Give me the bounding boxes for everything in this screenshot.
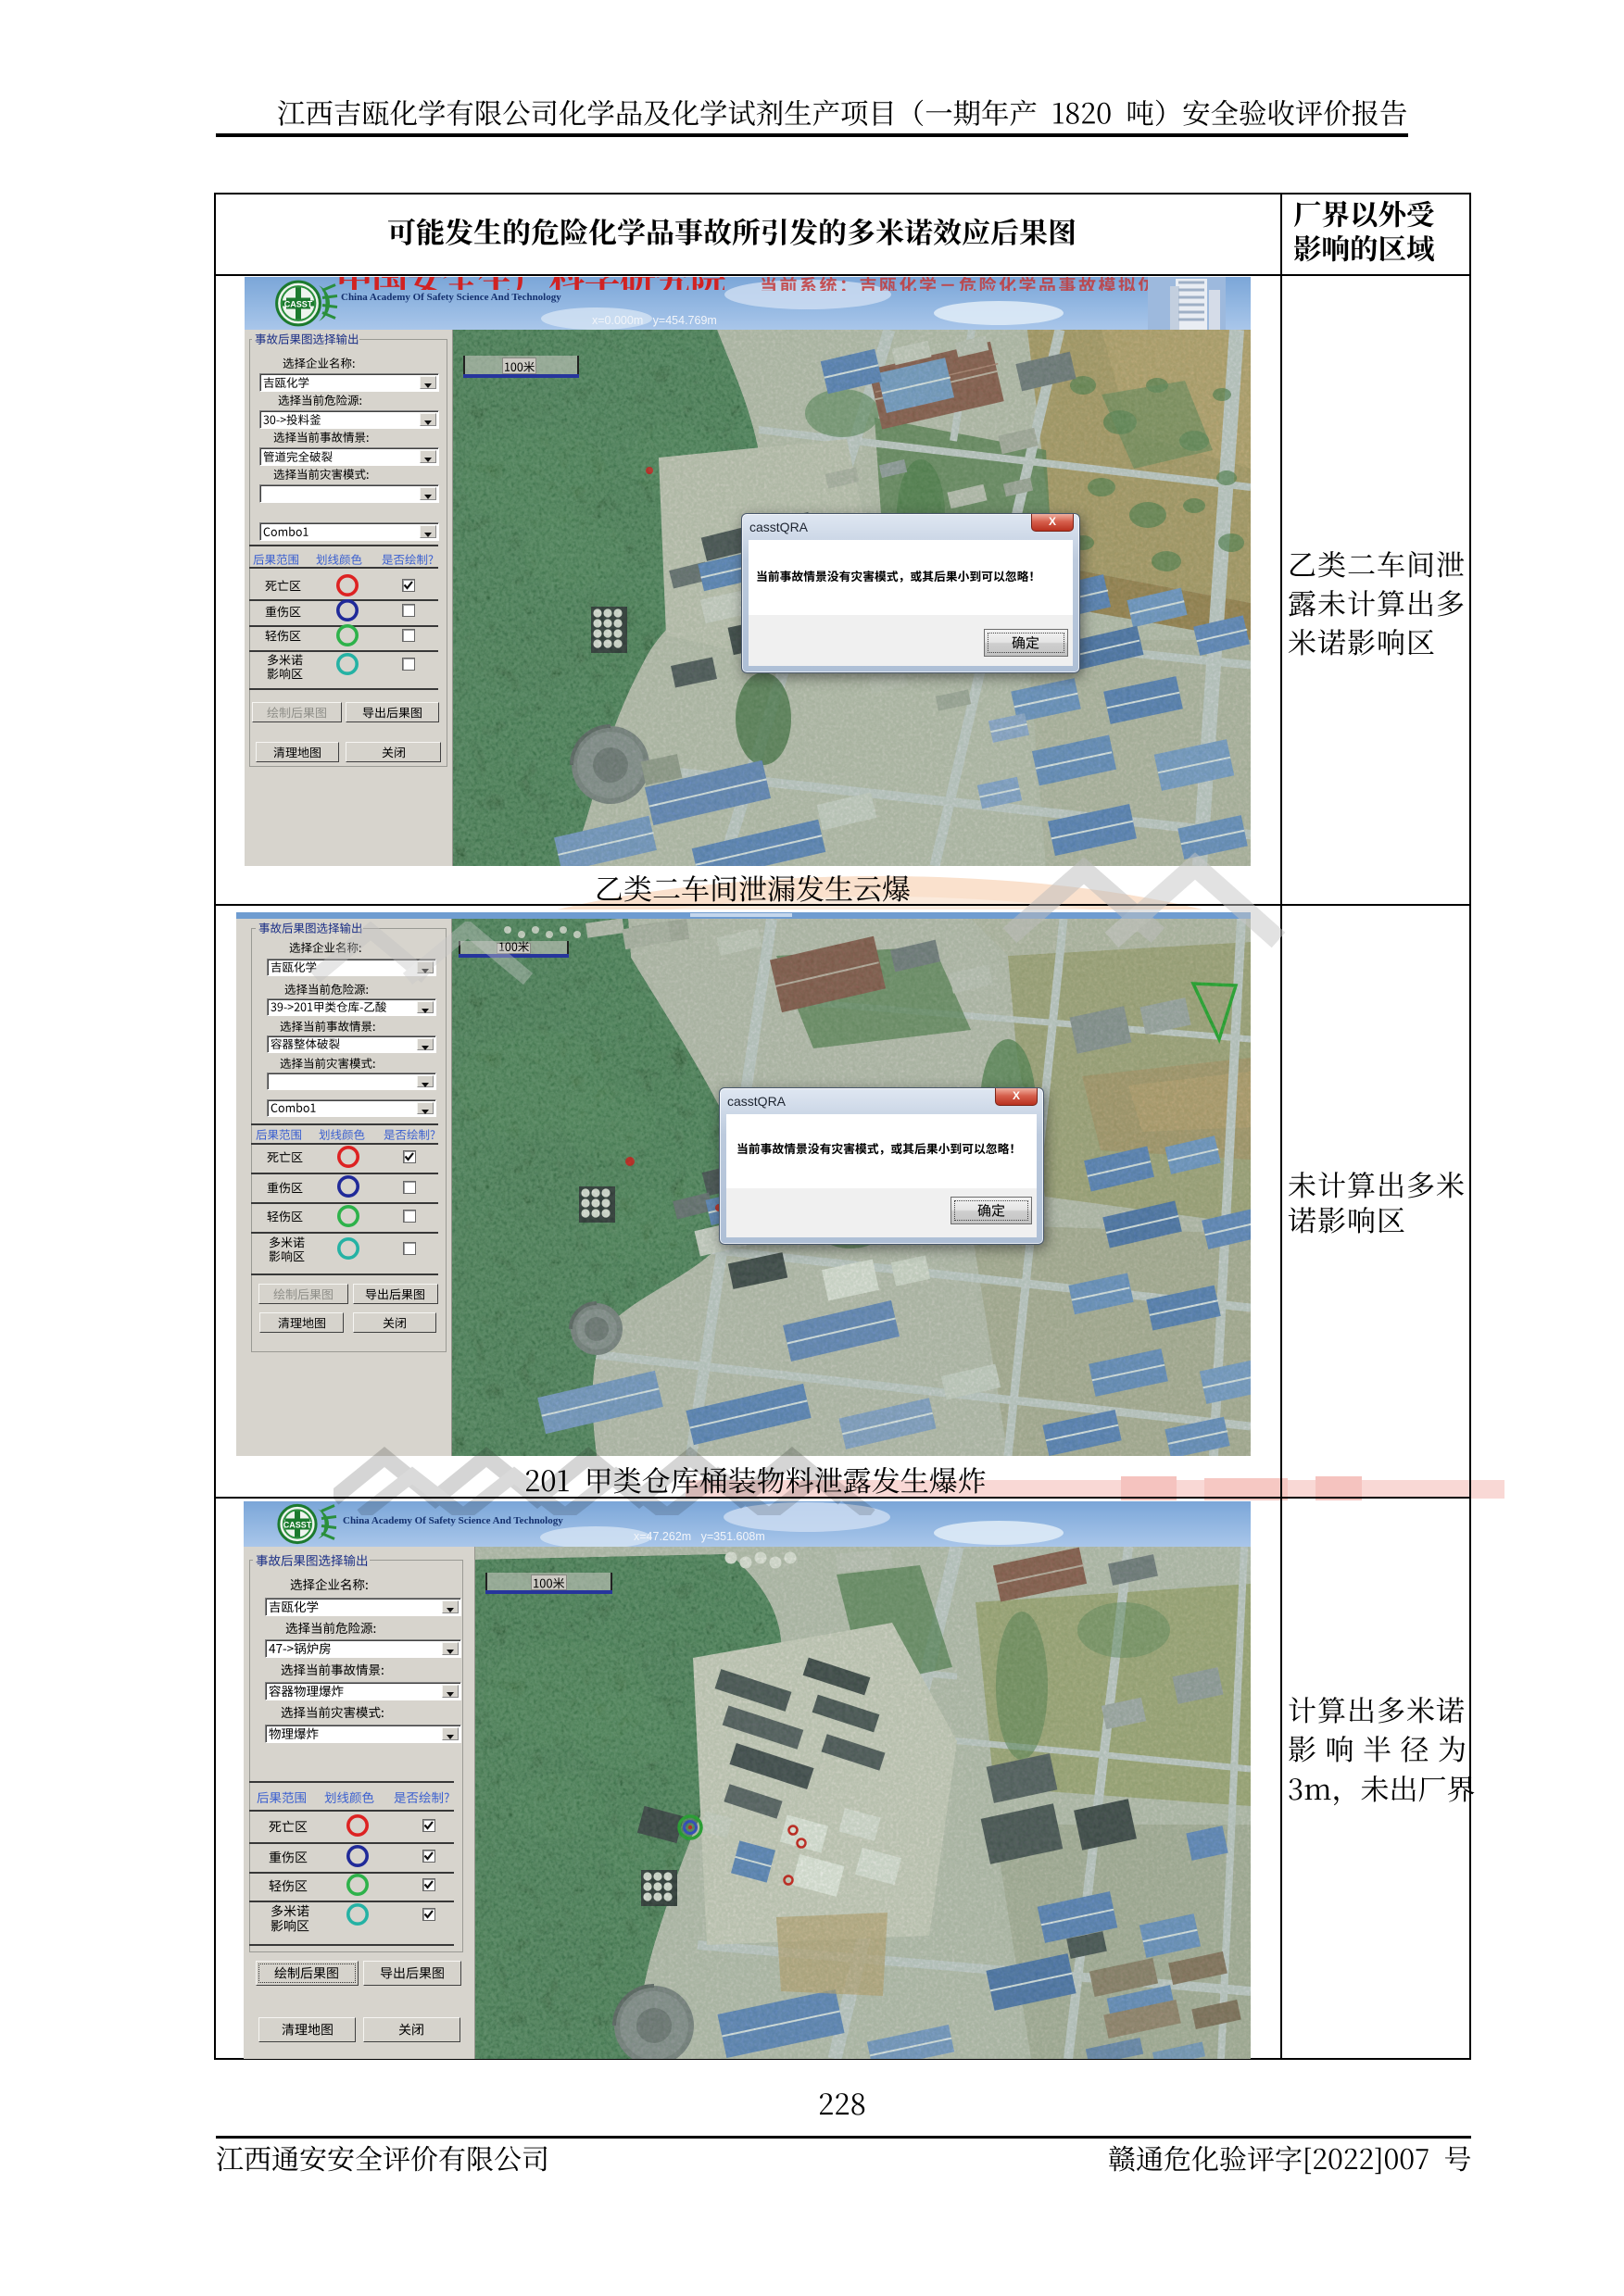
svg-text:CASST: CASST	[284, 300, 313, 309]
svg-text:CASST: CASST	[283, 1521, 312, 1530]
